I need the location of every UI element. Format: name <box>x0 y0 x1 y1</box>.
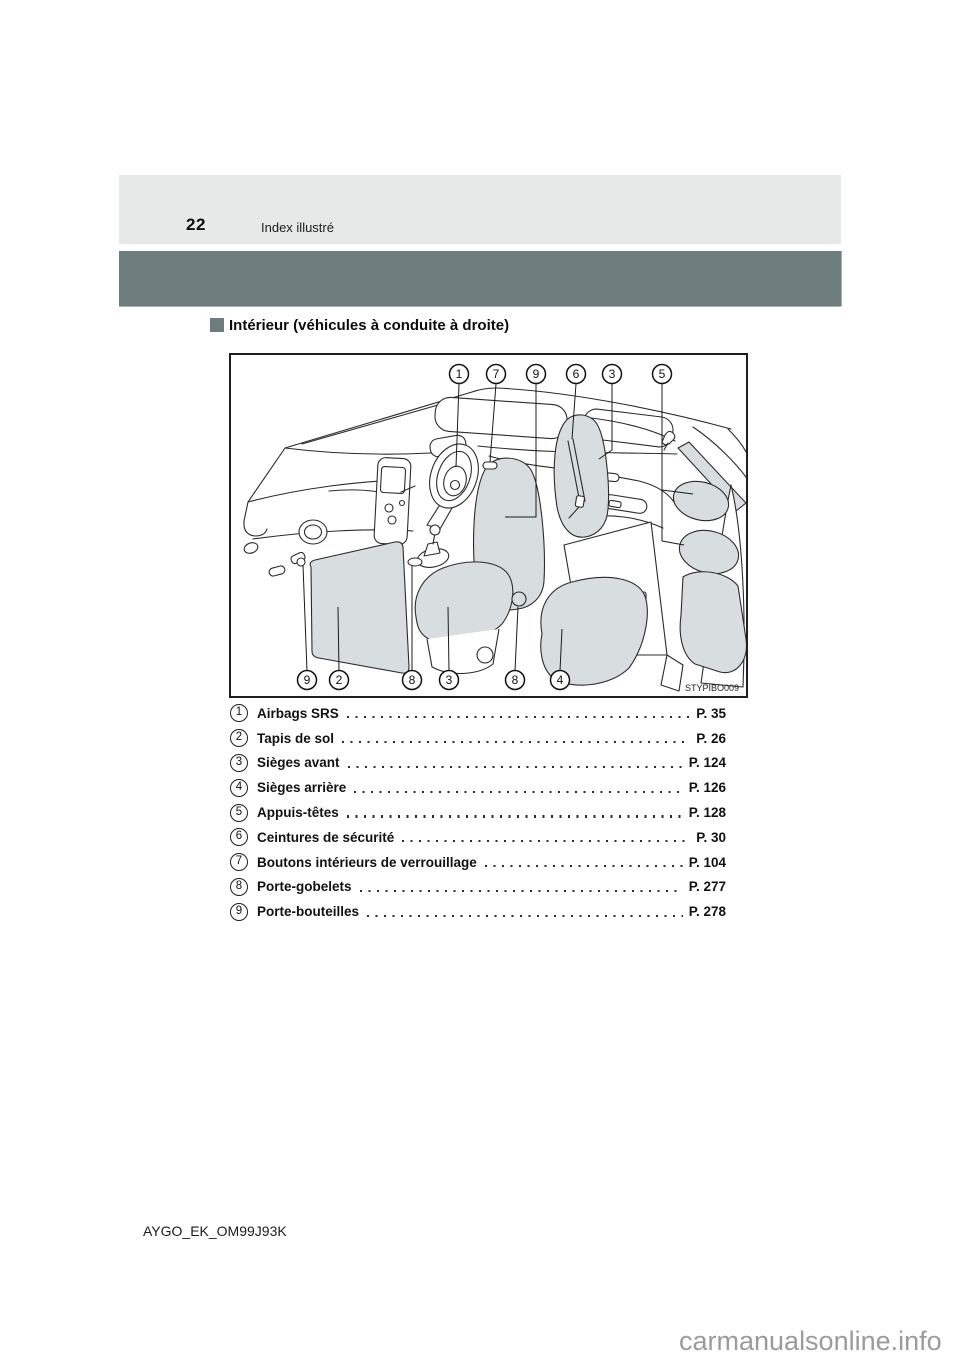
callout-top-7: 7 <box>487 365 506 384</box>
page-number: 22 <box>186 215 206 235</box>
dot-leader <box>354 791 682 793</box>
svg-text:5: 5 <box>659 367 666 381</box>
item-page-ref: P. 124 <box>689 755 726 770</box>
item-label: Airbags SRS <box>257 706 339 721</box>
interior-illustration: 1 7 9 6 3 5 9 2 8 3 8 4 STYPIBO009 <box>231 355 746 696</box>
item-page-ref: P. 104 <box>689 855 726 870</box>
figure-frame: 1 7 9 6 3 5 9 2 8 3 8 4 STYPIBO009 <box>229 353 748 698</box>
item-label: Boutons intérieurs de verrouillage <box>257 855 477 870</box>
svg-text:3: 3 <box>446 673 453 687</box>
svg-text:8: 8 <box>512 673 519 687</box>
callout-bottom-2: 2 <box>330 671 349 690</box>
section-title: Intérieur (véhicules à conduite à droite… <box>229 317 509 334</box>
chapter-header: Index illustré <box>261 220 334 235</box>
index-item: 6Ceintures de sécuritéP. 30 <box>230 825 726 850</box>
callout-bottom-8b: 8 <box>506 671 525 690</box>
item-label: Sièges avant <box>257 755 340 770</box>
item-label: Porte-bouteilles <box>257 904 359 919</box>
watermark: carmanualsonline.info <box>679 1326 942 1357</box>
header-bar-light <box>119 175 841 244</box>
item-label: Appuis-têtes <box>257 805 339 820</box>
callout-top-5: 5 <box>653 365 672 384</box>
dot-leader <box>402 840 690 842</box>
item-page-ref: P. 126 <box>689 780 726 795</box>
item-number-badge: 7 <box>230 853 248 871</box>
header-bar-dark <box>119 251 841 306</box>
index-item: 3Sièges avantP. 124 <box>230 751 726 776</box>
callout-bottom-9: 9 <box>298 671 317 690</box>
svg-text:1: 1 <box>456 367 463 381</box>
dot-leader <box>348 766 683 768</box>
dot-leader <box>360 890 683 892</box>
index-item: 2Tapis de solP. 26 <box>230 726 726 751</box>
item-number-badge: 1 <box>230 704 248 722</box>
index-list: 1Airbags SRSP. 352Tapis de solP. 263Sièg… <box>230 701 726 924</box>
callout-bottom-8a: 8 <box>403 671 422 690</box>
item-number-badge: 6 <box>230 828 248 846</box>
index-item: 9Porte-bouteillesP. 278 <box>230 899 726 924</box>
callout-bottom-4: 4 <box>551 671 570 690</box>
section-bullet-square <box>210 318 224 332</box>
item-page-ref: P. 277 <box>689 879 726 894</box>
item-label: Sièges arrière <box>257 780 346 795</box>
dot-leader <box>485 865 683 867</box>
svg-text:6: 6 <box>573 367 580 381</box>
svg-text:3: 3 <box>609 367 616 381</box>
item-label: Porte-gobelets <box>257 879 352 894</box>
dot-leader <box>347 716 690 718</box>
svg-text:7: 7 <box>493 367 500 381</box>
item-label: Ceintures de sécurité <box>257 830 394 845</box>
svg-text:9: 9 <box>533 367 540 381</box>
item-page-ref: P. 26 <box>696 731 726 746</box>
item-label: Tapis de sol <box>257 731 334 746</box>
item-number-badge: 8 <box>230 878 248 896</box>
callout-top-3: 3 <box>603 365 622 384</box>
item-number-badge: 2 <box>230 729 248 747</box>
svg-text:9: 9 <box>304 673 311 687</box>
dot-leader <box>347 815 683 817</box>
item-number-badge: 5 <box>230 804 248 822</box>
item-page-ref: P. 128 <box>689 805 726 820</box>
item-number-badge: 3 <box>230 754 248 772</box>
item-number-badge: 9 <box>230 903 248 921</box>
callout-top-9: 9 <box>527 365 546 384</box>
manual-page: 22 Index illustré Intérieur (véhicules à… <box>0 0 960 1358</box>
svg-text:2: 2 <box>336 673 343 687</box>
item-page-ref: P. 30 <box>696 830 726 845</box>
index-item: 7Boutons intérieurs de verrouillageP. 10… <box>230 850 726 875</box>
svg-text:8: 8 <box>409 673 416 687</box>
callout-bottom-3: 3 <box>440 671 459 690</box>
index-item: 5Appuis-têtesP. 128 <box>230 800 726 825</box>
callout-top-1: 1 <box>450 365 469 384</box>
figure-code: STYPIBO009 <box>685 683 739 693</box>
index-item: 8Porte-gobeletsP. 277 <box>230 875 726 900</box>
document-code: AYGO_EK_OM99J93K <box>143 1223 287 1239</box>
index-item: 4Sièges arrièreP. 126 <box>230 775 726 800</box>
callout-top-6: 6 <box>567 365 586 384</box>
item-page-ref: P. 278 <box>689 904 726 919</box>
dot-leader <box>367 915 683 917</box>
item-number-badge: 4 <box>230 779 248 797</box>
index-item: 1Airbags SRSP. 35 <box>230 701 726 726</box>
item-page-ref: P. 35 <box>696 706 726 721</box>
svg-text:4: 4 <box>557 673 564 687</box>
dot-leader <box>342 741 690 743</box>
